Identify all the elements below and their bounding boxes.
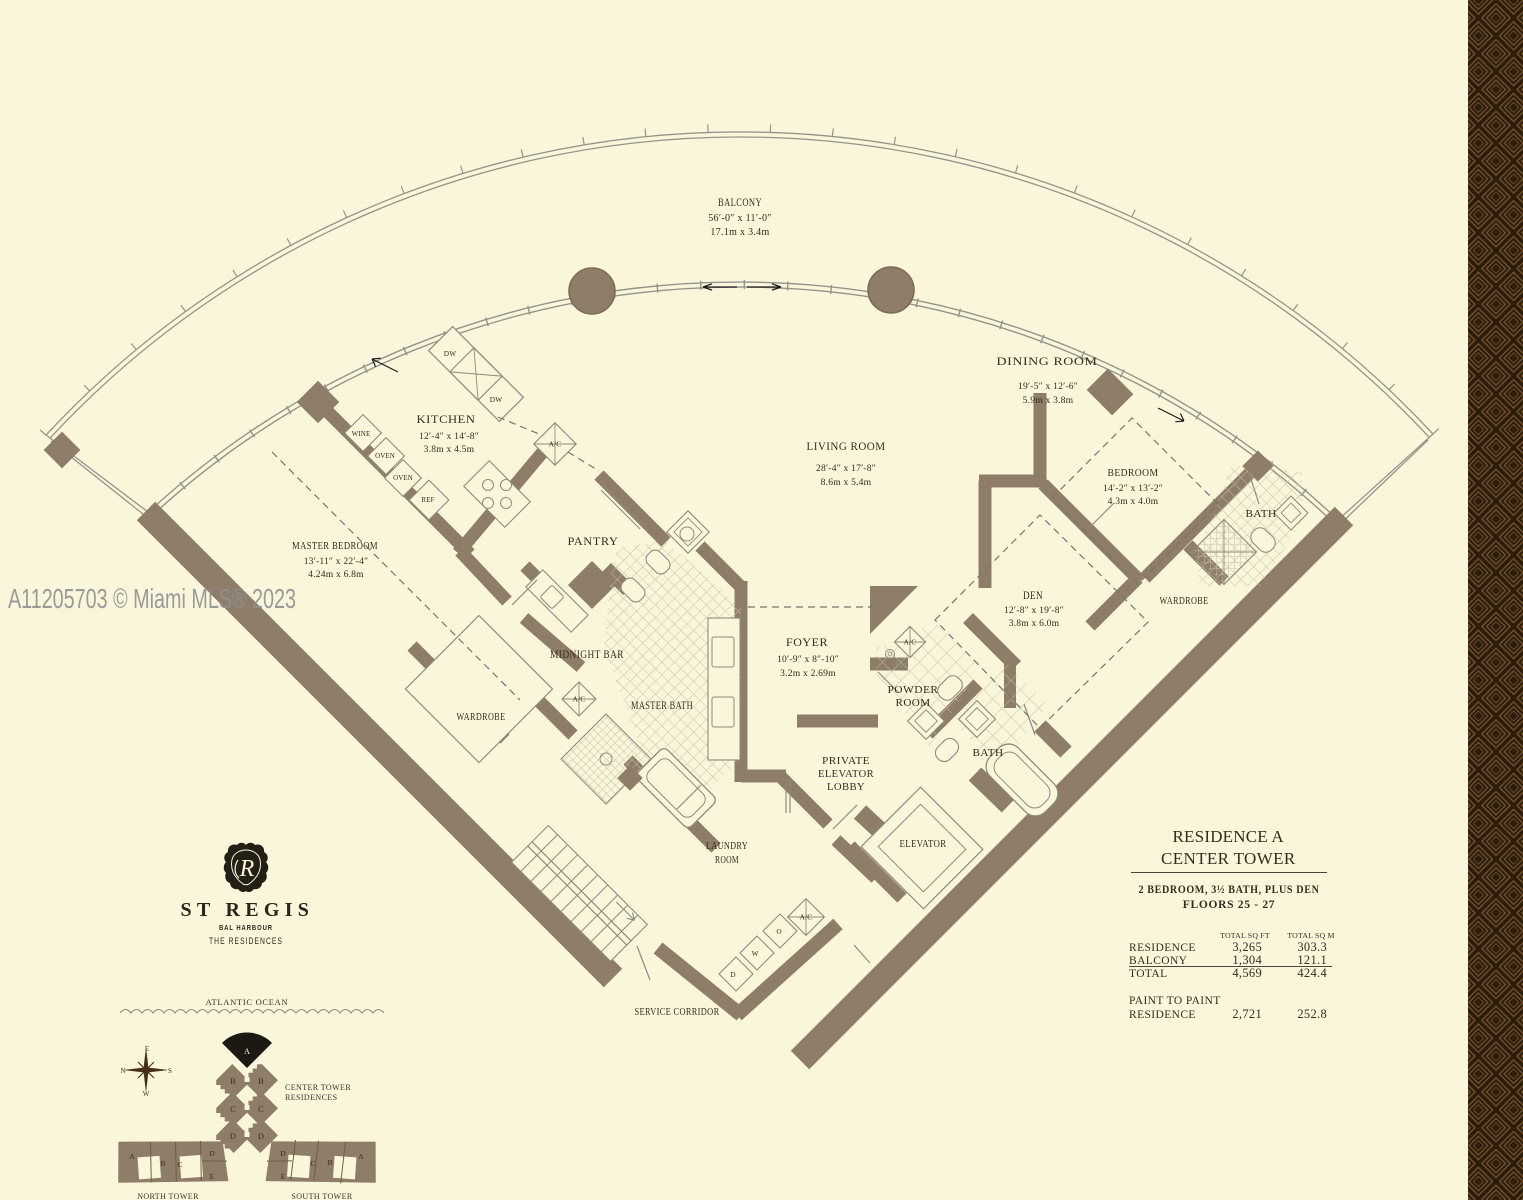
svg-text:S: S [168,1067,172,1075]
svg-text:MASTER BEDROOM: MASTER BEDROOM [292,540,378,552]
svg-text:3.8m x 6.0m: 3.8m x 6.0m [1009,618,1060,629]
svg-text:D: D [280,1149,286,1158]
svg-text:REF: REF [421,496,434,504]
svg-text:BEDROOM: BEDROOM [1108,467,1159,479]
svg-text:BATH: BATH [1246,508,1277,520]
svg-text:19′-5″ x 12′-6″: 19′-5″ x 12′-6″ [1018,381,1078,392]
svg-text:A/C: A/C [549,440,562,449]
svg-text:ATLANTIC OCEAN: ATLANTIC OCEAN [206,997,289,1007]
svg-text:DW: DW [490,395,503,404]
svg-text:C: C [177,1160,182,1169]
svg-text:SERVICE CORRIDOR: SERVICE CORRIDOR [635,1007,720,1018]
svg-text:4,569: 4,569 [1232,966,1262,980]
svg-text:FLOORS 25 - 27: FLOORS 25 - 27 [1183,899,1276,911]
svg-text:B: B [258,1076,264,1086]
svg-text:A/C: A/C [800,913,813,922]
svg-text:B: B [160,1159,165,1168]
svg-text:THE RESIDENCES: THE RESIDENCES [209,936,283,946]
svg-text:3.2m x 2.69m: 3.2m x 2.69m [780,668,836,679]
svg-text:17.1m x 3.4m: 17.1m x 3.4m [710,227,769,238]
svg-text:KITCHEN: KITCHEN [417,414,476,426]
svg-text:MASTER BATH: MASTER BATH [631,700,693,712]
svg-text:RESIDENCES: RESIDENCES [285,1093,337,1102]
svg-text:D: D [730,971,735,979]
svg-text:E: E [145,1045,149,1053]
svg-text:WINE: WINE [352,430,371,438]
svg-text:POWDER: POWDER [888,684,939,696]
svg-text:8.6m x 5.4m: 8.6m x 5.4m [821,477,872,488]
svg-text:O: O [776,928,781,936]
svg-text:D: D [209,1149,215,1158]
svg-text:OVEN: OVEN [393,474,413,482]
svg-text:1,304: 1,304 [1232,953,1262,967]
svg-text:TOTAL: TOTAL [1129,968,1168,980]
svg-text:28′-4″ x 17′-8″: 28′-4″ x 17′-8″ [816,463,876,474]
svg-text:252.8: 252.8 [1297,1007,1327,1021]
svg-text:WARDROBE: WARDROBE [457,711,506,723]
svg-text:2 BEDROOM, 3½ BATH, PLUS DEN: 2 BEDROOM, 3½ BATH, PLUS DEN [1139,884,1320,896]
svg-text:RESIDENCE: RESIDENCE [1129,942,1196,954]
svg-text:E: E [210,1172,215,1181]
svg-text:ELEVATOR: ELEVATOR [900,838,947,850]
svg-text:ROOM: ROOM [715,854,739,866]
svg-text:RESIDENCE A: RESIDENCE A [1173,827,1286,846]
svg-text:2,721: 2,721 [1232,1007,1262,1021]
svg-text:12′-8″ x 19′-8″: 12′-8″ x 19′-8″ [1004,605,1064,616]
svg-text:BALCONY: BALCONY [1129,955,1188,967]
svg-text:BATH: BATH [973,747,1004,759]
svg-text:SOUTH TOWER: SOUTH TOWER [291,1192,352,1200]
svg-text:10′-9″ x 8″-10″: 10′-9″ x 8″-10″ [777,654,839,665]
svg-text:WARDROBE: WARDROBE [1160,595,1209,607]
svg-text:ST REGIS: ST REGIS [181,899,312,921]
svg-text:A/C: A/C [904,638,917,647]
svg-text:RESIDENCE: RESIDENCE [1129,1009,1196,1021]
svg-text:D: D [258,1131,264,1141]
svg-text:C: C [230,1104,236,1114]
svg-text:56′-0″ x 11′-0″: 56′-0″ x 11′-0″ [708,213,772,224]
svg-text:4.24m x 6.8m: 4.24m x 6.8m [308,569,364,580]
svg-text:A: A [129,1152,135,1161]
svg-text:PAINT TO PAINT: PAINT TO PAINT [1129,995,1221,1007]
svg-text:D: D [230,1131,236,1141]
svg-text:BALCONY: BALCONY [718,197,762,209]
svg-text:DEN: DEN [1023,590,1043,602]
svg-text:DW: DW [444,349,457,358]
svg-text:N: N [120,1067,125,1075]
svg-text:C: C [310,1159,315,1168]
svg-text:121.1: 121.1 [1297,953,1327,967]
svg-text:B: B [327,1158,332,1167]
svg-text:3.8m x 4.5m: 3.8m x 4.5m [424,444,475,455]
svg-text:TOTAL SQ M: TOTAL SQ M [1287,931,1334,940]
svg-text:5.9m x 3.8m: 5.9m x 3.8m [1023,395,1074,406]
svg-text:NORTH TOWER: NORTH TOWER [137,1192,199,1200]
svg-text:MIDNIGHT BAR: MIDNIGHT BAR [550,649,624,661]
svg-text:B: B [230,1076,236,1086]
svg-text:303.3: 303.3 [1297,940,1327,954]
svg-text:4.3m x 4.0m: 4.3m x 4.0m [1108,496,1159,507]
svg-text:OVEN: OVEN [375,452,395,460]
svg-text:CENTER TOWER: CENTER TOWER [285,1083,351,1092]
svg-text:E: E [281,1172,286,1181]
svg-text:A: A [358,1152,364,1161]
svg-text:ROOM: ROOM [896,697,931,709]
svg-text:LIVING ROOM: LIVING ROOM [807,439,886,453]
svg-text:ELEVATOR: ELEVATOR [818,768,874,780]
svg-text:DINING ROOM: DINING ROOM [997,354,1098,368]
svg-text:A11205703 © Miami MLS® 2023: A11205703 © Miami MLS® 2023 [8,583,296,614]
svg-text:C: C [258,1104,264,1114]
svg-text:FOYER: FOYER [786,637,828,649]
svg-text:LOBBY: LOBBY [827,781,865,793]
svg-text:13′-11″ x 22′-4″: 13′-11″ x 22′-4″ [304,556,369,567]
svg-text:R: R [239,856,255,882]
svg-text:A/C: A/C [573,695,586,704]
svg-text:PANTRY: PANTRY [568,536,619,548]
svg-text:14′-2″ x 13′-2″: 14′-2″ x 13′-2″ [1103,483,1163,494]
svg-text:W: W [143,1090,150,1098]
svg-text:12′-4″ x 14′-8″: 12′-4″ x 14′-8″ [419,431,479,442]
svg-text:W: W [752,950,759,958]
svg-text:CENTER TOWER: CENTER TOWER [1161,849,1297,868]
svg-text:424.4: 424.4 [1297,966,1327,980]
svg-text:A: A [244,1047,250,1056]
svg-text:PRIVATE: PRIVATE [822,755,870,767]
svg-text:BAL HARBOUR: BAL HARBOUR [219,923,273,932]
svg-text:TOTAL SQ FT: TOTAL SQ FT [1220,931,1270,940]
svg-text:LAUNDRY: LAUNDRY [706,840,748,852]
svg-text:3,265: 3,265 [1232,940,1262,954]
